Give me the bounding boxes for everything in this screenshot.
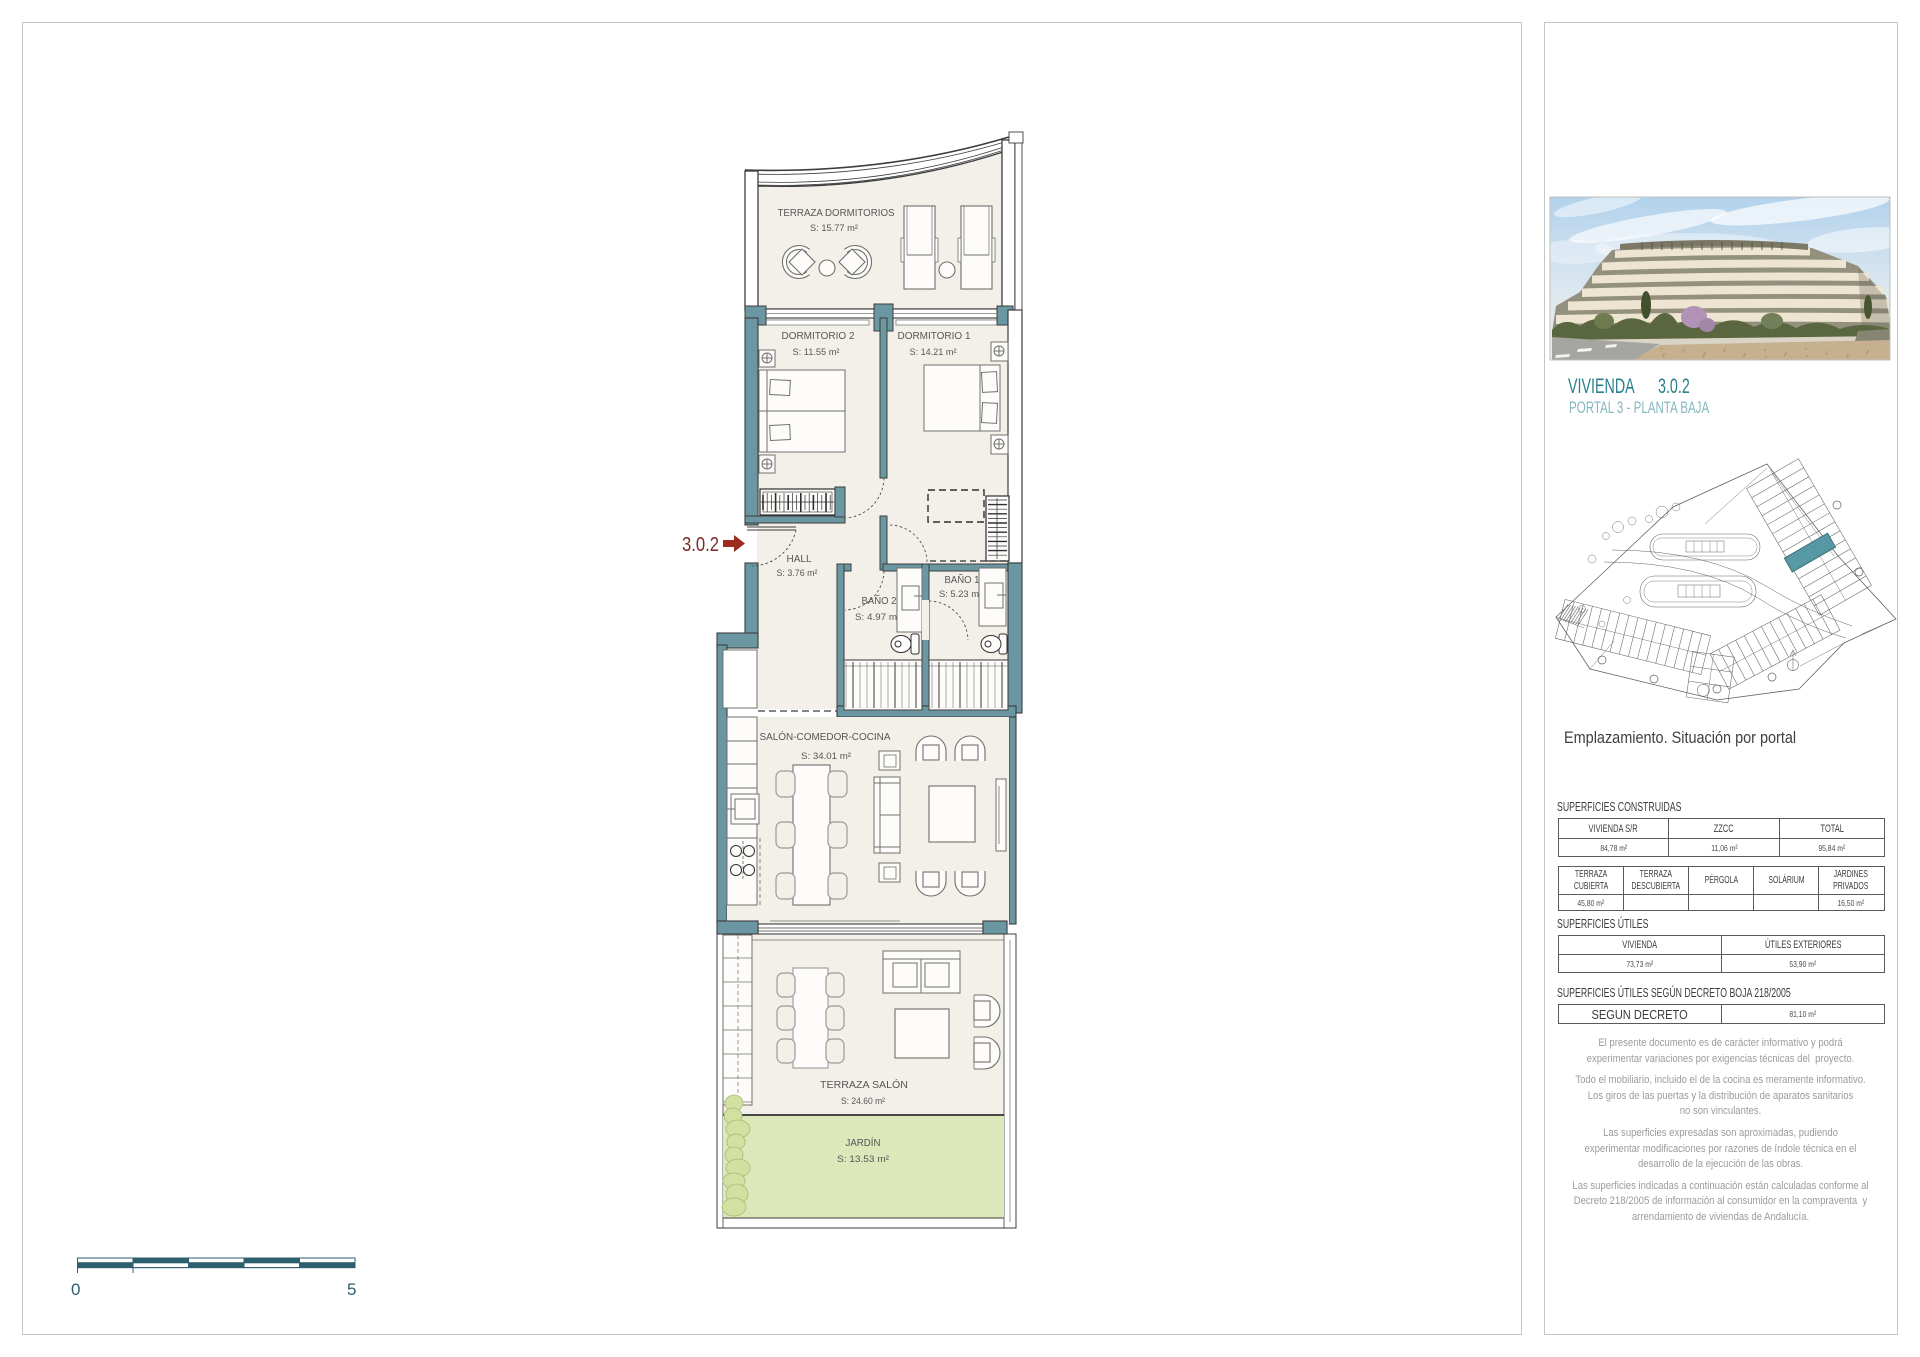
svg-text:S: 5.23 m: S: 5.23 m [939, 589, 979, 600]
svg-text:S: 13.53 m²: S: 13.53 m² [837, 1154, 889, 1165]
svg-text:S: 11.55 m²: S: 11.55 m² [793, 347, 840, 358]
svg-text:5: 5 [347, 1280, 356, 1299]
svg-text:3.0.2: 3.0.2 [682, 534, 719, 556]
svg-text:0: 0 [71, 1280, 80, 1299]
svg-text:HALL: HALL [787, 554, 812, 565]
svg-text:DORMITORIO 2: DORMITORIO 2 [782, 330, 855, 342]
svg-text:S: 3.76 m²: S: 3.76 m² [777, 568, 818, 579]
svg-text:S: 34.01 m²: S: 34.01 m² [801, 751, 851, 762]
svg-text:BAÑO 1: BAÑO 1 [945, 573, 980, 586]
svg-text:S: 4.97 m: S: 4.97 m [855, 612, 897, 623]
svg-text:BAÑO 2: BAÑO 2 [862, 594, 897, 607]
svg-text:JARDÍN: JARDÍN [846, 1136, 881, 1149]
svg-text:S: 15.77 m²: S: 15.77 m² [810, 223, 858, 234]
svg-text:S: 14.21 m²: S: 14.21 m² [910, 347, 957, 358]
svg-text:DORMITORIO 1: DORMITORIO 1 [898, 330, 971, 342]
svg-text:S: 24.60 m²: S: 24.60 m² [841, 1096, 885, 1107]
svg-text:TERRAZA SALÓN: TERRAZA SALÓN [820, 1078, 908, 1091]
svg-text:SALÓN-COMEDOR-COCINA: SALÓN-COMEDOR-COCINA [760, 730, 891, 743]
svg-text:TERRAZA DORMITORIOS: TERRAZA DORMITORIOS [778, 207, 895, 219]
